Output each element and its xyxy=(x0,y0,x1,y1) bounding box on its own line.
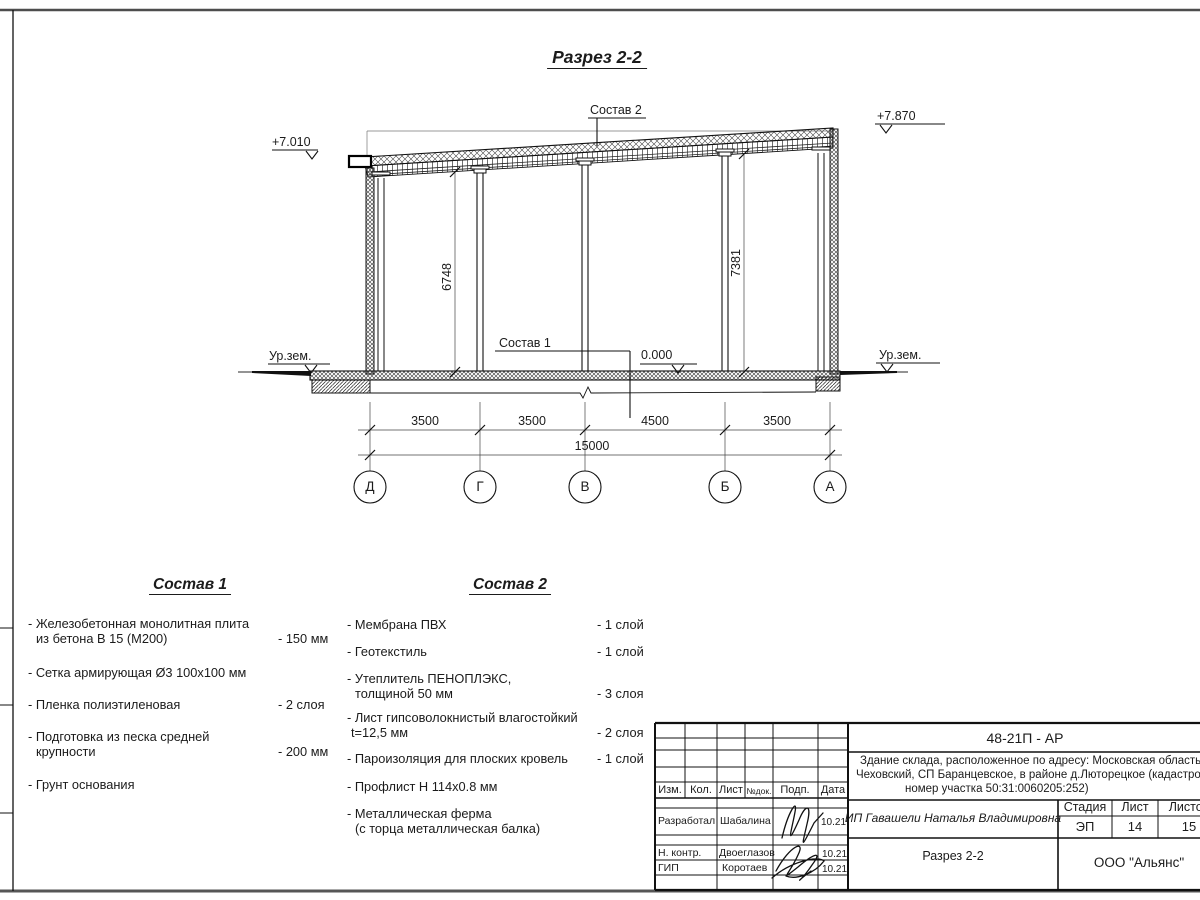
sostav1-item3-line1: - Пленка полиэтиленовая xyxy=(28,698,180,712)
ground-level-left: Ур.зем. xyxy=(269,350,311,364)
sostav2-item4-line2: t=12,5 мм xyxy=(351,726,408,740)
sostav1-item5-line1: - Грунт основания xyxy=(28,778,135,792)
sostav1-title: Состав 1 xyxy=(149,576,231,593)
dim-total: 15000 xyxy=(575,440,610,454)
dim-span-1: 3500 xyxy=(411,415,439,429)
titleblock-name-3: Коротаев xyxy=(722,863,767,875)
elevation-zero: 0.000 xyxy=(641,349,672,363)
elevation-right: +7.870 xyxy=(877,110,916,124)
sostav1-item4-line1: - Подготовка из песка средней xyxy=(28,730,209,744)
sostav1-title-text: Состав 1 xyxy=(149,576,231,595)
titleblock-col-ndok: №док. xyxy=(747,787,772,796)
sostav1-item1-line1: - Железобетонная монолитная плита xyxy=(28,617,249,631)
sostav2-title-text: Состав 2 xyxy=(469,576,551,595)
sostav2-item7-line1: - Металлическая ферма xyxy=(347,807,492,821)
titleblock-date-3: 10.21 xyxy=(822,864,847,875)
titleblock-sheet-label: Лист xyxy=(1121,801,1148,815)
titleblock-sheet-value: 14 xyxy=(1128,820,1142,834)
titleblock-stage-value: ЭП xyxy=(1076,820,1095,834)
axis-mark-a: А xyxy=(813,480,847,495)
sostav2-item5-line1: - Пароизоляция для плоских кровель xyxy=(347,752,568,766)
sostav2-item3-value: - 3 слоя xyxy=(597,687,644,701)
sostav1-item1-value: - 150 мм xyxy=(278,632,328,646)
page-title: Разрез 2-2 xyxy=(547,48,647,67)
sostav2-item3-line1: - Утеплитель ПЕНОПЛЭКС, xyxy=(347,672,511,686)
sostav2-item3-line2: толщиной 50 мм xyxy=(355,687,453,701)
sostav2-item2-value: - 1 слой xyxy=(597,645,644,659)
leader-label-sostav2: Состав 2 xyxy=(590,104,642,118)
axis-mark-v: В xyxy=(568,480,602,495)
sostav1-item3-value: - 2 слоя xyxy=(278,698,325,712)
drawing-sheet: Разрез 2-2 +7.010 +7.870 0.000 Ур.зем. У… xyxy=(0,0,1200,900)
sostav2-item4-line1: - Лист гипсоволокнистый влагостойкий xyxy=(347,711,578,725)
titleblock-date-1: 10.21 xyxy=(821,817,846,828)
dim-height-right: 7381 xyxy=(730,249,744,277)
titleblock-address-line3: номер участка 50:31:0060205:252) xyxy=(905,783,1089,796)
sostav2-item2-line1: - Геотекстиль xyxy=(347,645,427,659)
sostav2-item1-value: - 1 слой xyxy=(597,618,644,632)
sostav1-item1-line2: из бетона В 15 (М200) xyxy=(36,632,167,646)
axis-mark-d: Д xyxy=(353,480,387,495)
titleblock-name-1: Шабалина xyxy=(720,816,771,828)
sostav1-item4-line2: крупности xyxy=(36,745,96,759)
dim-span-3: 4500 xyxy=(641,415,669,429)
titleblock-sheets-label: Листов xyxy=(1169,801,1200,815)
titleblock-company: ООО "Альянс" xyxy=(1094,856,1184,871)
axis-mark-b: Б xyxy=(708,480,742,495)
sostav2-item4-value: - 2 слоя xyxy=(597,726,644,740)
elevation-left: +7.010 xyxy=(272,136,311,150)
titleblock-col-izm: Изм. xyxy=(658,784,682,796)
titleblock-address-line2: Чеховский, СП Баранцевское, в районе д.Л… xyxy=(856,769,1200,782)
dim-span-4: 3500 xyxy=(763,415,791,429)
titleblock-role-2: Н. контр. xyxy=(658,848,701,860)
titleblock-doc-title: Разрез 2-2 xyxy=(922,850,983,864)
titleblock-col-list: Лист xyxy=(719,784,743,796)
titleblock-col-kol: Кол. xyxy=(690,784,712,796)
sostav2-item1-line1: - Мембрана ПВХ xyxy=(347,618,446,632)
sostav1-item4-value: - 200 мм xyxy=(278,745,328,759)
leader-label-sostav1: Состав 1 xyxy=(499,337,551,351)
dim-span-2: 3500 xyxy=(518,415,546,429)
titleblock-role-3: ГИП xyxy=(658,863,679,875)
titleblock-client: ИП Гавашели Наталья Владимировна xyxy=(845,812,1061,825)
titleblock-col-podp: Подп. xyxy=(780,784,809,796)
sostav1-item2-line1: - Сетка армирующая Ø3 100x100 мм xyxy=(28,666,246,680)
sostav2-title: Состав 2 xyxy=(469,576,551,593)
axis-mark-g: Г xyxy=(463,480,497,495)
titleblock-role-1: Разработал xyxy=(658,816,715,828)
titleblock-doc-code: 48-21П - АР xyxy=(987,731,1064,746)
ground-level-right: Ур.зем. xyxy=(879,349,921,363)
titleblock-col-data: Дата xyxy=(821,784,845,796)
sostav2-item5-value: - 1 слой xyxy=(597,752,644,766)
sostav2-item7-line2: (с торца металлическая балка) xyxy=(355,822,540,836)
titleblock-stage-label: Стадия xyxy=(1064,801,1107,815)
titleblock-address-line1: Здание склада, расположенное по адресу: … xyxy=(860,755,1200,768)
dim-height-left: 6748 xyxy=(441,263,455,291)
titleblock-date-2: 10.21 xyxy=(822,849,847,860)
titleblock-sheets-value: 15 xyxy=(1182,820,1196,834)
titleblock-name-2: Двоеглазов xyxy=(719,848,775,860)
sostav2-item6-line1: - Профлист Н 114х0.8 мм xyxy=(347,780,497,794)
page-title-text: Разрез 2-2 xyxy=(547,47,647,69)
